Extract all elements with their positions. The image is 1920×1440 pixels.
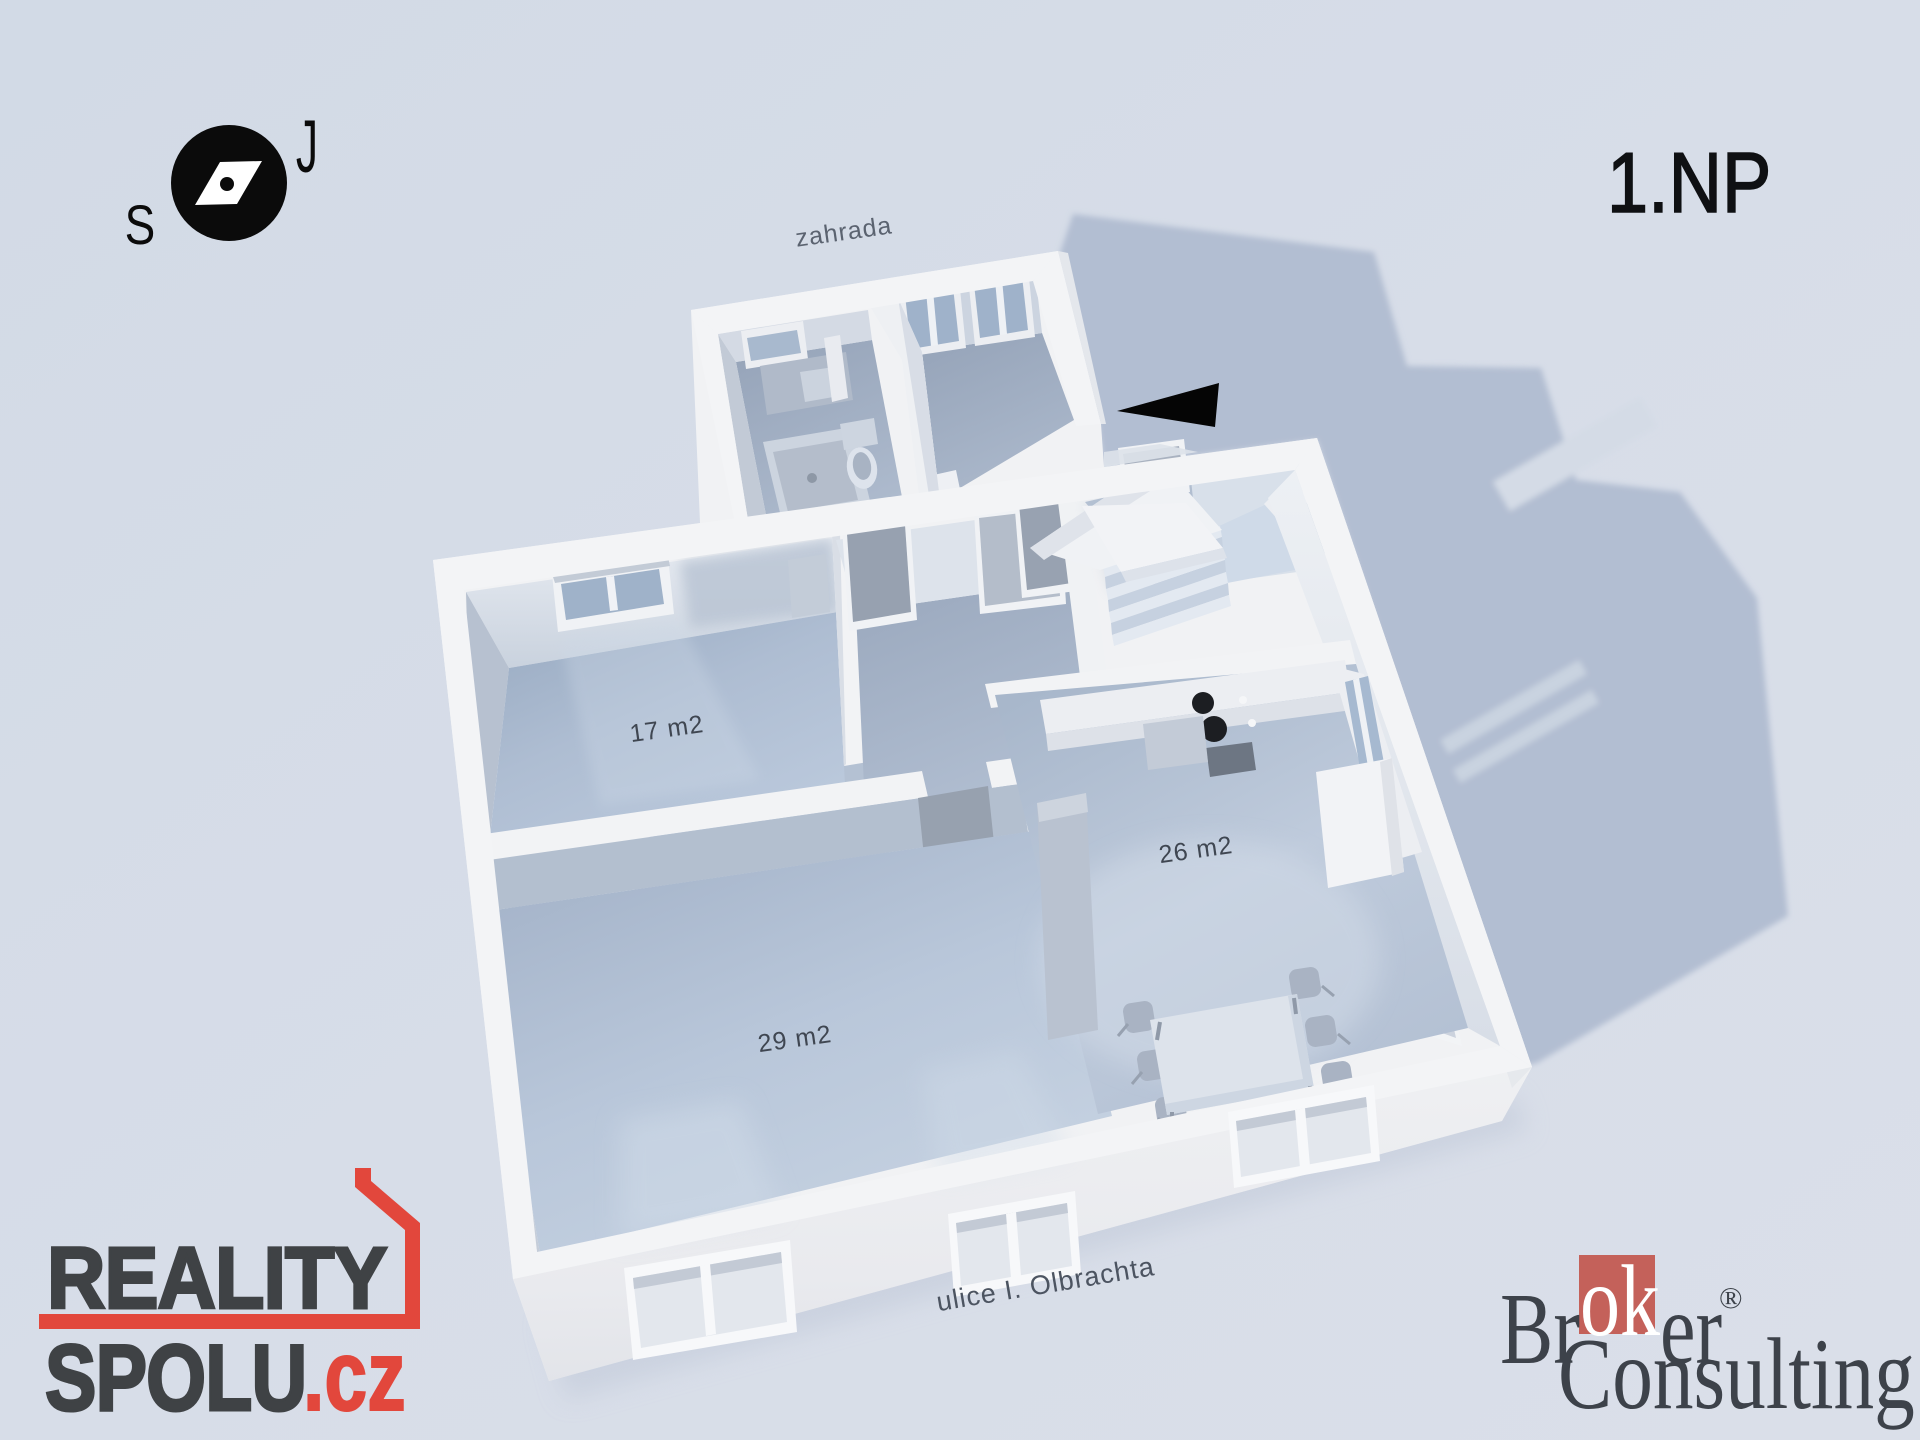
svg-text:REALITY: REALITY (47, 1229, 387, 1326)
svg-text:SPOLU: SPOLU (45, 1326, 306, 1431)
svg-text:J: J (296, 105, 318, 187)
svg-text:.cz: .cz (303, 1319, 406, 1431)
svg-text:Consulting: Consulting (1558, 1317, 1915, 1430)
svg-text:®: ® (1719, 1280, 1743, 1315)
svg-text:1.NP: 1.NP (1607, 135, 1771, 230)
svg-text:S: S (125, 194, 156, 256)
